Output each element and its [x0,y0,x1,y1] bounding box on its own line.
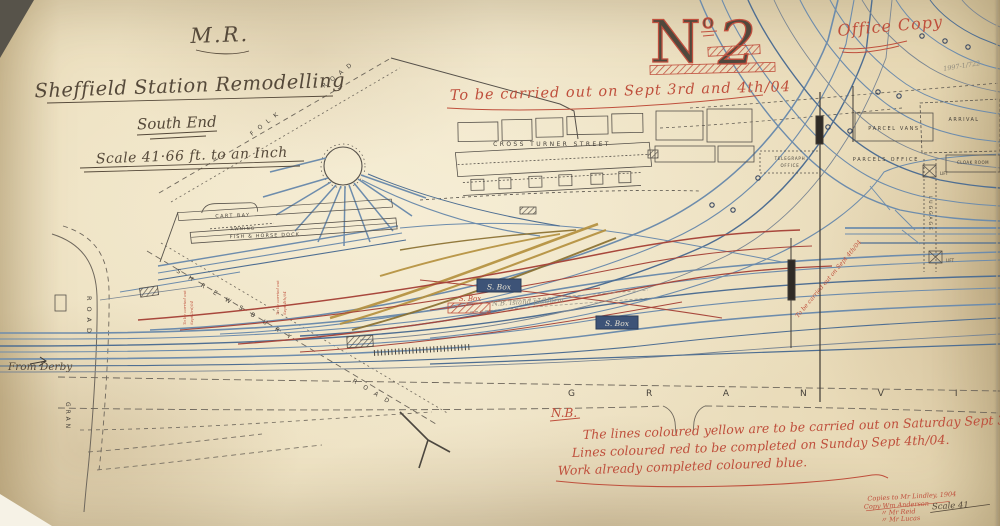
lift-label: LIFT [940,171,949,176]
plan-title: Sheffield Station Remodelling [34,69,345,103]
station-plan-map: S. Box S. Box S. Box CROSS TURNER STREET… [0,0,1000,526]
island-platform-pencil-note: N.B. Island platform [491,296,565,308]
pencil-reference-number: 1997-1/722 [943,59,981,73]
signature-block: Copies to Mr Lindley, 1904 Copy Wm Ander… [863,488,990,525]
dock-label: FISH & HORSE DOCK [230,232,300,240]
scale-fragment: Scale 41 [932,500,969,512]
signature-line: 〃 Mr Lucas [880,514,921,524]
scale-note: Scale 41·66 ft. to an Inch [96,145,288,168]
red-vertical-note: Sept 3rd/04 [189,301,194,325]
nb-note: N.B. The lines coloured yellow are to be… [550,406,1000,487]
luggage-platform-label: LUGGAGE [927,196,933,232]
railway-initials: M.R. [189,22,249,48]
red-vertical-note: To be carried out [275,280,280,315]
signal-box-label-red: S. Box [459,295,481,303]
arrival-label: ARRIVAL [949,117,980,123]
street-label: CROSS TURNER STREET [493,141,611,148]
plan-subtitle: South End [137,113,217,134]
signal-box-label: S. Box [487,283,512,292]
turntable [263,144,560,246]
signal-box-label: S. Box [605,319,630,328]
nb-underline-flourish [556,475,888,487]
red-vertical-note: Sept 4th/04 [282,291,287,315]
granville-street-label: GRANVI [568,389,1000,399]
parcels-office-label: PARCELS OFFICE [853,157,920,163]
paper-edge-shadow [994,0,1000,526]
awning-label: AWNING [231,226,256,232]
red-vertical-note: To be carried out [182,290,187,325]
cart-bay-label: CART BAY [215,212,250,219]
granville-lane-label: GRAN [64,402,71,431]
lift-label: LIFT [946,258,955,263]
from-derby-label: From Derby [7,361,73,373]
signal-box-shape-red [448,303,490,313]
carry-out-note: To be carried out on Sept 3rd and 4th/04 [450,79,791,104]
track-lines-blue [0,0,1000,372]
red-diagonal-note: To be carried out on Sept 4th/04 [794,239,863,319]
telegraph-office-label: TELEGRAPH [774,156,806,161]
parcel-vans-label: PARCEL VANS [868,126,919,132]
nb-heading: N.B. [550,406,577,420]
sheet-number-o: o [702,9,714,33]
scanned-plan-sheet: S. Box S. Box S. Box CROSS TURNER STREET… [0,0,1000,526]
road-label-left: ROAD [85,296,93,339]
cloak-room-label: CLOAK ROOM [957,160,989,165]
telegraph-office-label: OFFICE [780,163,799,168]
title-block: M.R. Sheffield Station Remodelling South… [34,22,345,172]
sheet-number: N o 2 [650,8,775,79]
office-copy-stamp: Office Copy [837,12,944,40]
